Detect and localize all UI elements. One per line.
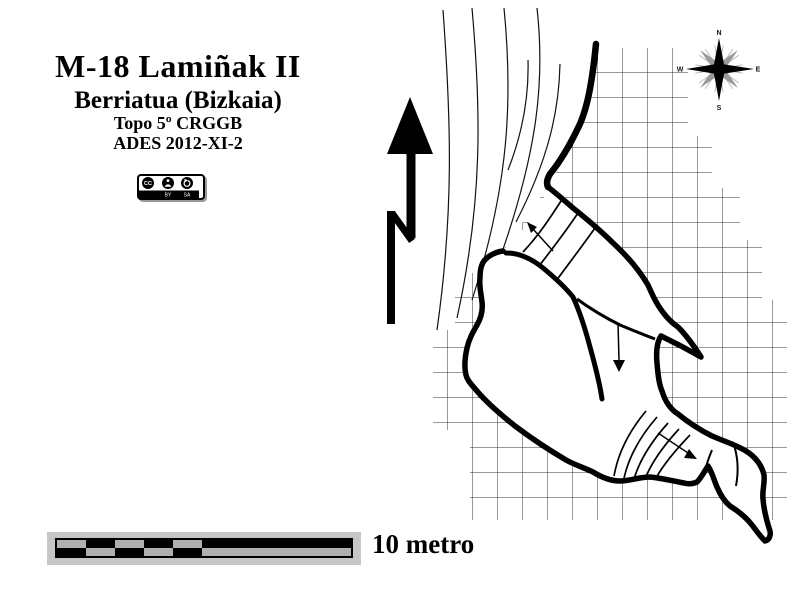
scale-segment: [173, 540, 202, 548]
compass-cardinal-points: [686, 38, 754, 101]
contour-line: [457, 8, 478, 318]
scale-segment: [57, 548, 86, 556]
compass-label-south: S: [717, 105, 722, 112]
scale-segment: [86, 540, 115, 548]
north-arrow-head: [387, 97, 433, 154]
scale-segment: [57, 540, 86, 548]
scale-segment: [115, 540, 144, 548]
scale-segment: [144, 540, 173, 548]
compass-label-east: E: [756, 67, 761, 74]
contour-line: [508, 60, 528, 170]
scale-segment: [144, 548, 173, 556]
scale-label: 10 metro: [372, 529, 474, 560]
scale-segment: [173, 548, 202, 556]
flow-arrow-shaft: [618, 323, 619, 360]
scale-segment: [202, 548, 351, 556]
north-arrow: [387, 97, 433, 324]
scale-segment: [115, 548, 144, 556]
cave-map-page: M-18 Lamiñak II Berriatua (Bizkaia) Topo…: [0, 0, 800, 600]
north-arrow-shaft: [407, 150, 416, 238]
contour-line: [437, 10, 449, 330]
survey-map: N S W E: [0, 0, 800, 600]
compass-rose: N S W E: [677, 30, 761, 112]
scale-bar-track: [55, 538, 353, 558]
compass-label-west: W: [677, 67, 684, 74]
scale-segment: [202, 540, 351, 548]
scale-bar-row-top: [57, 540, 351, 548]
compass-label-north: N: [716, 30, 721, 37]
scale-bar-row-bottom: [57, 548, 351, 556]
scale-bar: [47, 532, 361, 565]
scale-segment: [86, 548, 115, 556]
